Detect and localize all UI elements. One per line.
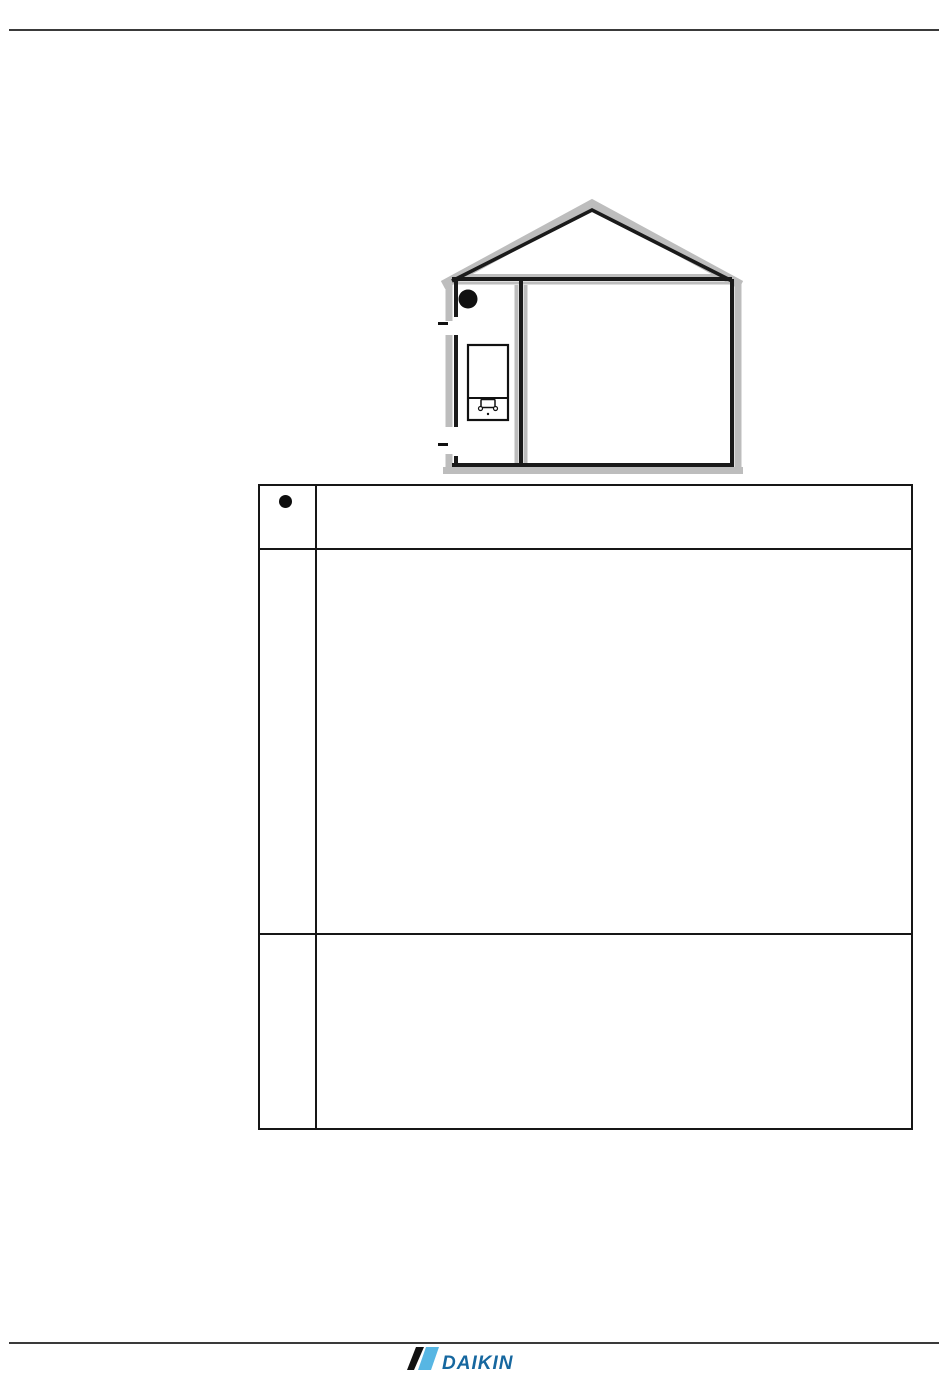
table-cell-marker — [260, 550, 317, 933]
legend-table — [258, 484, 913, 1130]
table-cell-description — [317, 550, 911, 933]
indoor-unit — [468, 345, 508, 420]
bullet-icon — [279, 495, 292, 508]
daikin-logo-text: DAIKIN — [442, 1353, 514, 1374]
table-row — [260, 935, 911, 1128]
daikin-flag-icon — [407, 1347, 439, 1370]
diagram-shadow — [443, 204, 743, 471]
table-cell-description — [317, 486, 911, 548]
table-row — [260, 486, 911, 550]
daikin-logo: DAIKIN — [407, 1344, 519, 1375]
header-rule — [9, 29, 939, 31]
table-row — [260, 550, 911, 935]
table-cell-marker — [260, 935, 317, 1128]
house-diagram — [437, 196, 747, 482]
position-marker-icon — [459, 290, 478, 309]
table-cell-description — [317, 935, 911, 1128]
table-cell-marker — [260, 486, 317, 548]
diagram-outline — [452, 210, 734, 467]
